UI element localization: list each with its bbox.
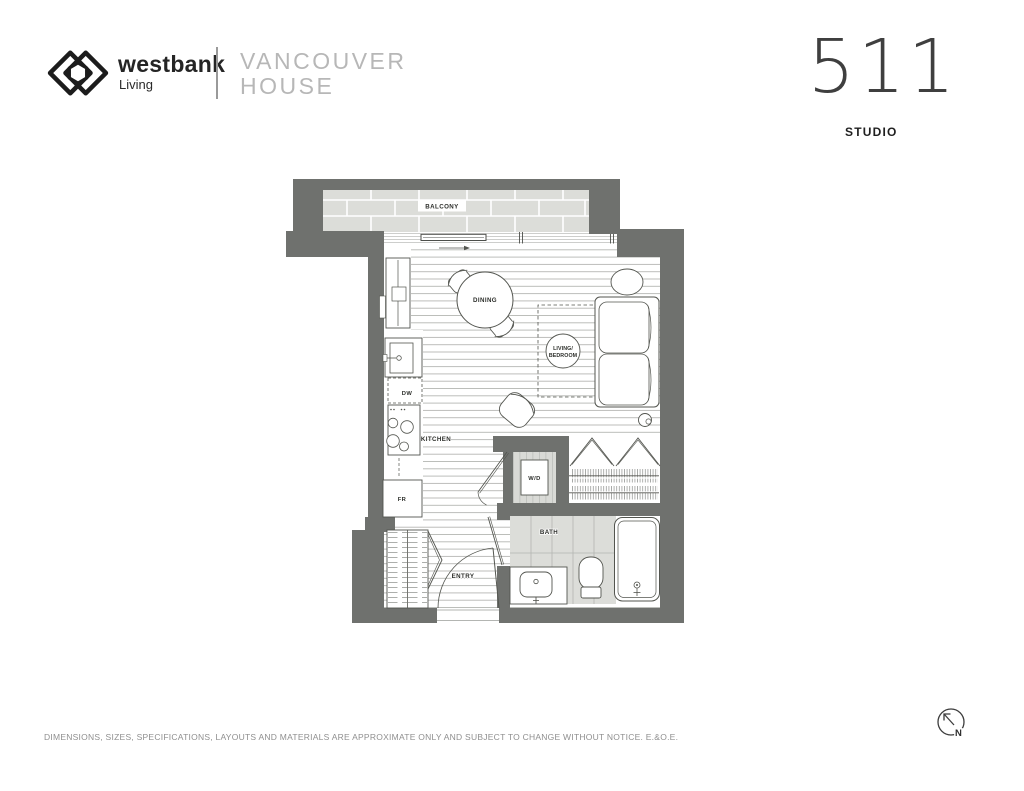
kitchen-sink [383,338,422,377]
label-kitchen: KITCHEN [421,436,451,443]
label-fr: FR [398,497,407,503]
living-bedroom-label: LIVING/ BEDROOM [546,334,580,368]
north-label: N [955,728,962,739]
side-stool [639,414,652,427]
brand-sub: Living [119,77,153,92]
project-line1: VANCOUVER [240,49,407,74]
label-bath: BATH [540,529,558,536]
label-living-2: BEDROOM [549,353,578,359]
washer-dryer: W/D [513,452,556,503]
fridge: FR [383,480,422,517]
brand-name: westbank [118,51,225,78]
label-entry: ENTRY [452,573,475,580]
label-wd: W/D [528,476,540,482]
unit-type: STUDIO [845,125,898,139]
bathtub [615,518,660,602]
stove [387,405,420,455]
north-arrow-icon: N [934,703,974,743]
unit-number: 511 [808,24,958,110]
floorplan-sheet: westbank Living VANCOUVER HOUSE 511 STUD… [0,0,1024,791]
entry-closet [387,530,428,608]
toilet [579,557,603,598]
wardrobe-closet [569,436,660,503]
balcony: BALCONY [323,184,589,232]
westbank-logo-icon [46,46,110,100]
entry-threshold [437,610,499,621]
label-living-1: LIVING/ [553,346,573,352]
label-balcony: BALCONY [425,204,459,211]
vanity-sink [510,567,567,604]
disclaimer-text: DIMENSIONS, SIZES, SPECIFICATIONS, LAYOU… [44,732,678,742]
bathroom: BATH [510,516,660,604]
project-name: VANCOUVER HOUSE [240,49,407,99]
header-divider [216,47,218,99]
project-line2: HOUSE [240,74,407,99]
ottoman [611,269,643,295]
dishwasher: DW [388,378,422,403]
label-dw: DW [402,391,413,397]
floor-plan: BALCONY [280,170,690,630]
label-dining: DINING [473,297,497,304]
